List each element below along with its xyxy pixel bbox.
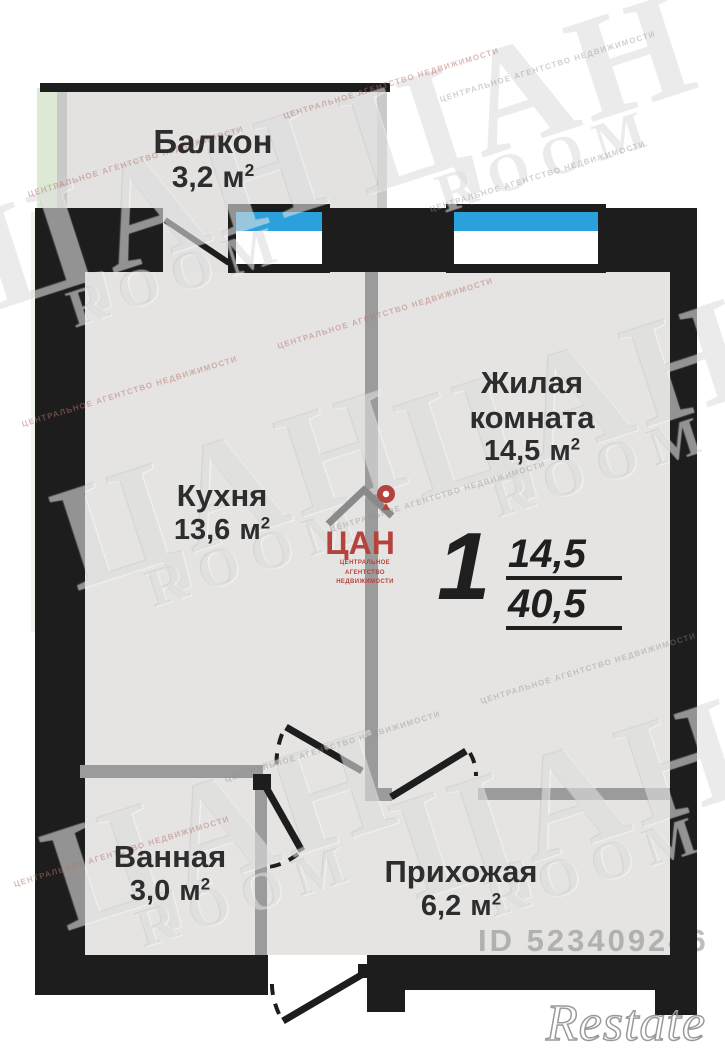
- bottom-wall-left: [35, 955, 268, 995]
- room-name: Балкон: [153, 124, 272, 161]
- room-label-living-room: Жилая комната 14,5м2: [436, 366, 629, 468]
- room-name: Прихожая: [385, 855, 538, 890]
- agency-logo: ЦАН: [320, 482, 406, 565]
- room-area-sup: 2: [245, 160, 255, 180]
- divider-foot: [365, 788, 392, 801]
- right-wall: [670, 208, 697, 1015]
- living-window-sill: [454, 231, 598, 264]
- balcony-top-wall: [40, 83, 390, 92]
- room-area-unit: м: [222, 161, 244, 194]
- agency-tagline-line2: НЕДВИЖИМОСТИ: [320, 578, 410, 588]
- logo-brand-text: ЦАН: [325, 525, 395, 560]
- room-area-unit: м: [549, 435, 570, 467]
- room-label-kitchen: Кухня 13,6м2: [174, 479, 270, 546]
- rooms-count: 1: [437, 526, 490, 608]
- room-name: Ванная: [114, 840, 226, 875]
- agency-tagline: ЦЕНТРАЛЬНОЕ АГЕНТСТВО НЕДВИЖИМОСТИ: [320, 559, 410, 588]
- bottom-wall-notch: [367, 955, 405, 1012]
- room-label-balcony: Балкон 3,2м2: [153, 124, 272, 195]
- room-area-sup: 2: [261, 513, 270, 532]
- room-area-unit: м: [179, 875, 200, 907]
- entrance-door-leaf: [283, 974, 363, 1021]
- balcony-window-glass-blue: [236, 212, 322, 231]
- room-area-unit: м: [470, 890, 491, 922]
- left-wall: [35, 208, 85, 995]
- room-area: 14,5м2: [436, 435, 629, 467]
- room-area-value: 14,5: [484, 435, 540, 467]
- green-strip: [37, 88, 57, 212]
- room-area-value: 13,6: [174, 514, 230, 546]
- bottom-right-corner: [655, 955, 697, 1015]
- living-hallway-wall: [478, 788, 670, 800]
- area-summary: 14,5 40,5: [506, 535, 622, 635]
- living-window-glass-blue: [454, 212, 598, 231]
- agency-logo-icon: ЦАН: [320, 482, 406, 560]
- bottom-wall-right: [367, 955, 670, 990]
- room-area: 13,6м2: [174, 514, 270, 546]
- room-area-sup: 2: [492, 889, 501, 908]
- room-area-value: 3,0: [130, 875, 170, 907]
- living-area-value: 14,5: [506, 535, 622, 580]
- balcony-window-sill: [236, 231, 322, 264]
- kitchen-bathroom-wall: [80, 765, 263, 778]
- room-area-sup: 2: [201, 874, 210, 893]
- total-area-value: 40,5: [506, 585, 622, 630]
- bathroom-right-wall: [255, 787, 267, 955]
- room-area: 6,2м2: [385, 890, 538, 922]
- room-area-value: 3,2: [172, 161, 214, 194]
- room-area-value: 6,2: [421, 890, 461, 922]
- room-name: Кухня: [174, 479, 270, 514]
- entrance-door-swing: [272, 980, 279, 1014]
- room-label-bathroom: Ванная 3,0м2: [114, 840, 226, 907]
- room-label-hallway: Прихожая 6,2м2: [385, 855, 538, 922]
- logo-pin-center: [383, 491, 389, 497]
- room-area-unit: м: [239, 514, 260, 546]
- room-area: 3,2м2: [153, 161, 272, 195]
- agency-tagline-line1: ЦЕНТРАЛЬНОЕ АГЕНТСТВО: [320, 559, 410, 578]
- floorplan-canvas: ID 523409246: [0, 0, 725, 1060]
- room-name: Жилая комната: [436, 366, 629, 435]
- room-area: 3,0м2: [114, 875, 226, 907]
- room-area-sup: 2: [571, 435, 580, 454]
